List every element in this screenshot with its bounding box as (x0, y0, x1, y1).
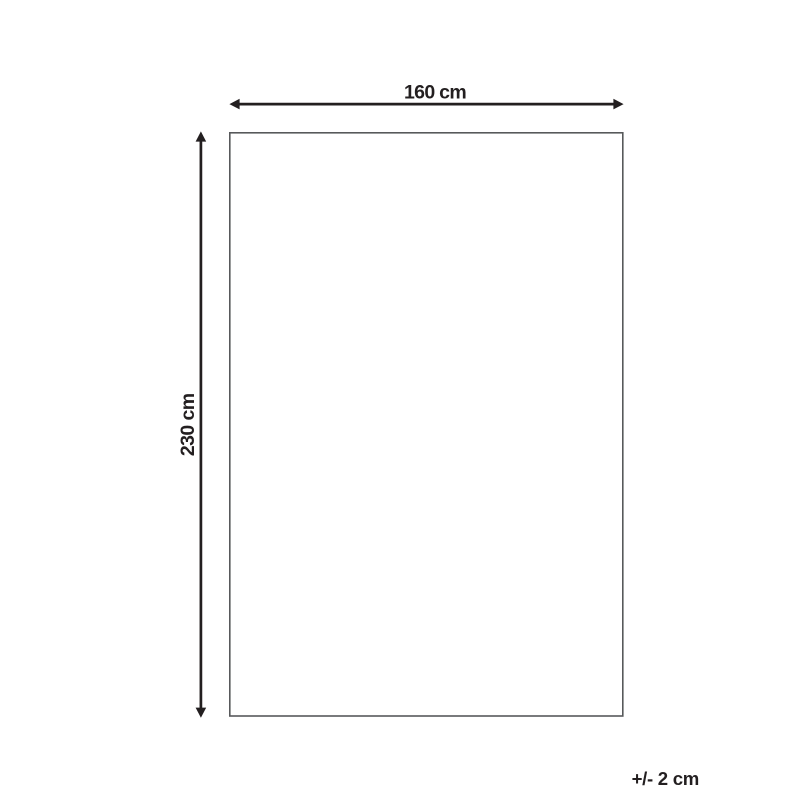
svg-text:160 cm: 160 cm (404, 82, 466, 104)
svg-text:+/- 2 cm: +/- 2 cm (632, 768, 699, 789)
svg-text:230 cm: 230 cm (177, 393, 199, 456)
